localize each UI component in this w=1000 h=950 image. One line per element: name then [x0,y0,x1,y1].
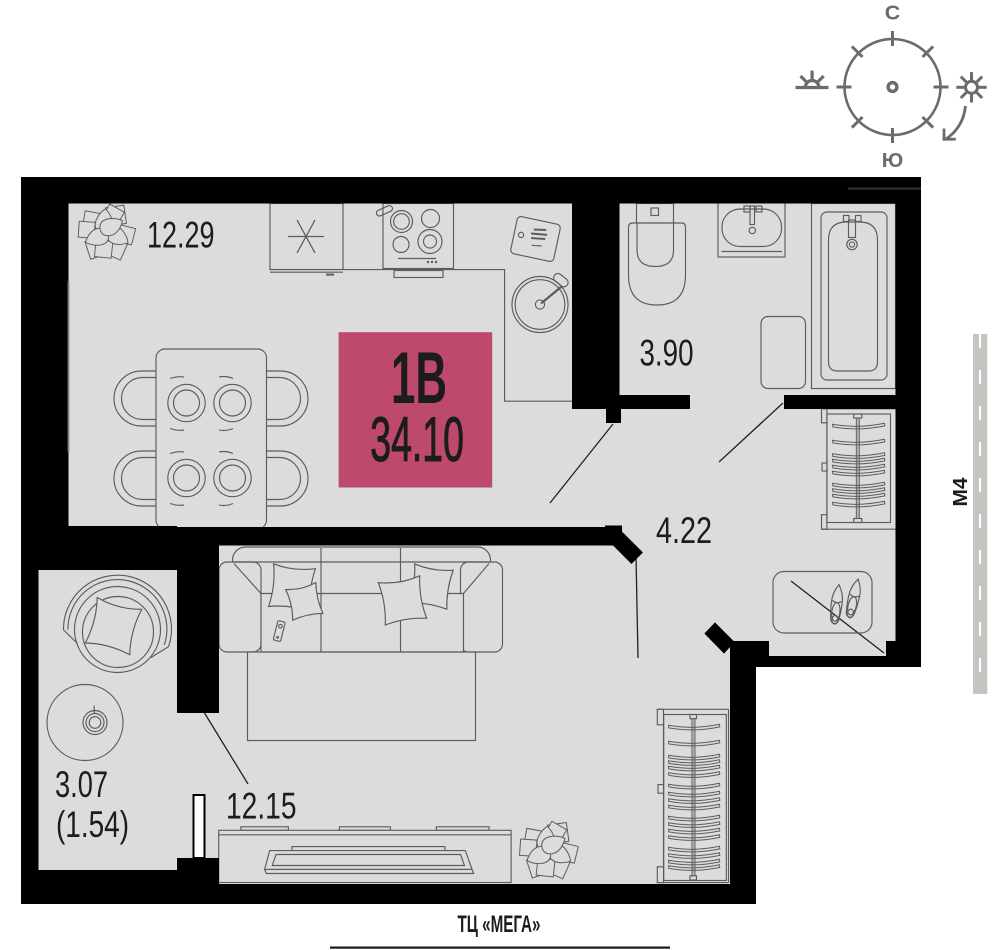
svg-text:3.07: 3.07 [55,764,108,805]
svg-text:12.15: 12.15 [226,786,297,827]
svg-text:Ю: Ю [882,150,904,172]
svg-text:ТЦ «МЕГА»: ТЦ «МЕГА» [458,911,541,938]
svg-text:С: С [885,3,901,25]
svg-text:34.10: 34.10 [370,405,464,475]
svg-text:4.22: 4.22 [656,510,712,551]
svg-text:(1.54): (1.54) [56,804,129,845]
svg-text:М4: М4 [950,477,972,507]
svg-text:3.90: 3.90 [640,333,694,374]
svg-text:12.29: 12.29 [147,215,215,256]
